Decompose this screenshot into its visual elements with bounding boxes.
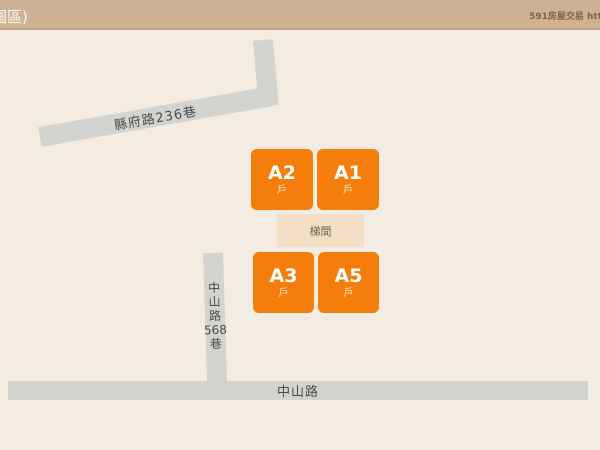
unit-id: A3 <box>270 266 298 286</box>
unit-a2[interactable]: A2 戶 <box>251 149 313 210</box>
unit-id: A1 <box>334 163 362 183</box>
stairwell-label: 梯間 <box>310 223 332 239</box>
road-mountain-lane-char: 568 <box>204 323 227 338</box>
road-main: 中山路 <box>8 381 588 400</box>
road-county-lane-label: 縣府路236巷 <box>112 100 198 133</box>
unit-a5[interactable]: A5 戶 <box>318 252 379 313</box>
road-mountain-lane: 中 山 路 568 巷 <box>203 253 227 385</box>
site-plan-map: 縣府路236巷 中 山 路 568 巷 中山路 梯間 A2 戶 A1 戶 A3 … <box>0 0 600 450</box>
unit-a1[interactable]: A1 戶 <box>317 149 379 210</box>
road-mountain-lane-char: 巷 <box>210 337 222 351</box>
road-main-label: 中山路 <box>277 381 319 400</box>
unit-id: A2 <box>268 163 296 183</box>
unit-a3[interactable]: A3 戶 <box>253 252 314 313</box>
unit-household-label: 戶 <box>279 288 289 299</box>
watermark-text: 591房屋交易 htt <box>529 9 600 22</box>
road-mountain-lane-char: 路 <box>209 309 221 323</box>
unit-id: A5 <box>335 266 363 286</box>
road-mountain-lane-label: 中 山 路 568 巷 <box>202 281 228 385</box>
unit-household-label: 戶 <box>277 185 287 196</box>
road-mountain-lane-char: 中 <box>208 281 220 295</box>
stairwell-box: 梯間 <box>277 214 364 247</box>
road-county-lane: 縣府路236巷 <box>38 87 272 147</box>
title-bar: 圖區) 591房屋交易 htt <box>0 0 600 30</box>
page-title-partial: 圖區) <box>0 6 28 27</box>
road-mountain-lane-char: 山 <box>208 295 220 309</box>
unit-household-label: 戶 <box>344 288 354 299</box>
unit-household-label: 戶 <box>343 185 353 196</box>
